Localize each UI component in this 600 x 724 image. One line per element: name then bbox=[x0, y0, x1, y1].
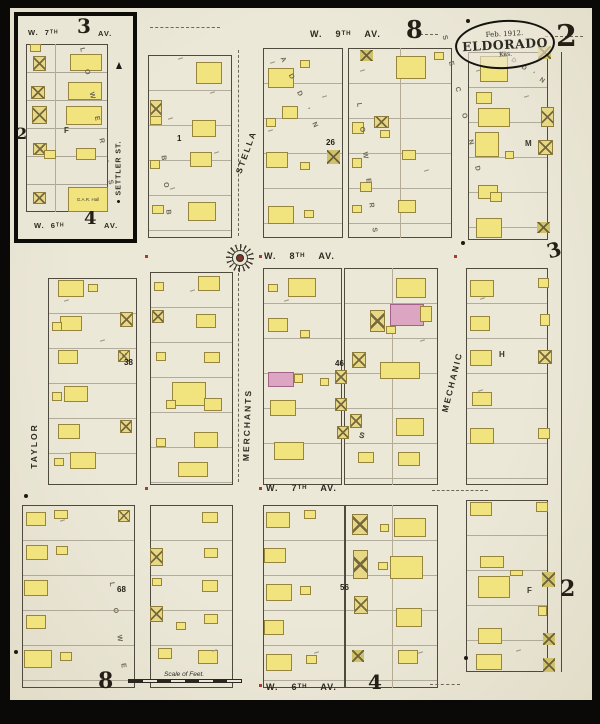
building bbox=[538, 606, 547, 616]
building bbox=[480, 556, 504, 568]
building bbox=[88, 284, 98, 292]
street-word: AV. bbox=[318, 251, 335, 261]
street-word: W. bbox=[266, 682, 279, 692]
street-word: 7ᵀᴴ bbox=[292, 483, 308, 493]
utility-dot bbox=[464, 656, 468, 660]
brick-building bbox=[268, 372, 294, 387]
building bbox=[158, 648, 172, 659]
dashed-line bbox=[238, 50, 239, 236]
lot-letter-f: F bbox=[527, 587, 532, 595]
building bbox=[510, 570, 523, 576]
street-label-w6th-inset: W. 6ᵀᴴ bbox=[34, 221, 64, 230]
building bbox=[190, 152, 212, 167]
compass-hub bbox=[236, 254, 244, 262]
outbuilding-x bbox=[150, 548, 163, 566]
outbuilding-x bbox=[152, 310, 164, 323]
hydrant-mark bbox=[454, 255, 457, 258]
street-word: AV. bbox=[320, 483, 337, 493]
street-word: 9ᵀᴴ bbox=[336, 29, 352, 39]
block-number-4-bottom: 4 bbox=[368, 672, 382, 692]
building bbox=[306, 655, 317, 664]
block-number-2-right: 2 bbox=[560, 578, 575, 600]
building bbox=[470, 428, 494, 444]
outbuilding-x bbox=[31, 86, 45, 99]
gar-hall-label: G.A.R. Hall bbox=[77, 197, 100, 202]
building bbox=[472, 392, 492, 406]
street-label-settler: SETTLER ST. bbox=[116, 141, 123, 196]
building bbox=[26, 545, 48, 560]
building bbox=[150, 116, 162, 125]
street-label-w6th: W. 6ᵀᴴ AV. bbox=[266, 682, 337, 692]
street-word: 8ᵀᴴ bbox=[290, 251, 306, 261]
building bbox=[476, 92, 492, 104]
building bbox=[396, 56, 426, 79]
building bbox=[402, 150, 416, 160]
street-word: AV. bbox=[320, 682, 337, 692]
lot-number: 68 bbox=[117, 586, 126, 594]
dashed-line bbox=[432, 490, 488, 491]
building bbox=[26, 615, 46, 629]
building bbox=[60, 316, 82, 331]
building bbox=[152, 578, 162, 586]
building bbox=[380, 524, 389, 532]
street-word: W. bbox=[34, 221, 45, 230]
outbuilding-x bbox=[538, 140, 553, 155]
outbuilding-x bbox=[327, 150, 340, 164]
street-label-av2-inset: AV. bbox=[104, 221, 118, 230]
lot-letter-h: H bbox=[499, 351, 505, 359]
utility-dot bbox=[461, 241, 465, 245]
building bbox=[270, 400, 296, 416]
building bbox=[204, 352, 220, 363]
building bbox=[266, 512, 290, 528]
hydrant-mark bbox=[145, 487, 148, 490]
outbuilding-x bbox=[542, 572, 555, 587]
lot-number: 56 bbox=[340, 584, 349, 592]
outbuilding-x bbox=[335, 398, 347, 411]
city-block bbox=[150, 272, 233, 485]
outbuilding-x bbox=[537, 222, 550, 233]
outbuilding-x bbox=[120, 312, 133, 327]
hydrant-mark bbox=[259, 255, 262, 258]
compass-rose-icon bbox=[226, 244, 254, 272]
building bbox=[470, 502, 492, 516]
building bbox=[378, 562, 388, 570]
outbuilding-x bbox=[352, 352, 366, 368]
building bbox=[204, 398, 222, 411]
outbuilding-x bbox=[370, 310, 385, 332]
building bbox=[198, 276, 220, 291]
building bbox=[490, 192, 502, 202]
building bbox=[52, 322, 62, 331]
outbuilding-x bbox=[354, 596, 368, 614]
building bbox=[398, 200, 416, 213]
building bbox=[268, 318, 288, 332]
street-word: AV. bbox=[364, 29, 381, 39]
building bbox=[150, 160, 160, 169]
building bbox=[478, 628, 502, 644]
outbuilding-x bbox=[32, 106, 47, 124]
survey-dot bbox=[117, 200, 120, 203]
building bbox=[166, 400, 176, 409]
building bbox=[58, 350, 78, 364]
building bbox=[390, 556, 423, 579]
street-word: W. bbox=[310, 29, 323, 39]
street-word: 6ᵀᴴ bbox=[292, 682, 308, 692]
city-block bbox=[466, 268, 548, 485]
lot-letter-m: M bbox=[525, 140, 532, 148]
building bbox=[470, 350, 492, 366]
building bbox=[58, 280, 84, 297]
building bbox=[154, 282, 164, 291]
building bbox=[24, 650, 52, 668]
street-word: 7ᵀᴴ bbox=[45, 28, 59, 37]
building bbox=[386, 326, 396, 334]
building bbox=[538, 428, 550, 439]
outbuilding-x bbox=[541, 107, 554, 127]
building bbox=[476, 654, 502, 670]
building bbox=[396, 418, 424, 436]
sanborn-map-page: G.A.R. Hall W. 7ᵀᴴ 3 AV. W. 6ᵀᴴ 4 AV. 2 … bbox=[0, 0, 600, 724]
building bbox=[196, 314, 216, 328]
building bbox=[268, 284, 278, 292]
building bbox=[304, 510, 316, 519]
block-number-2-inset: 2 bbox=[16, 126, 27, 142]
building bbox=[176, 622, 186, 630]
utility-dot bbox=[24, 494, 28, 498]
building bbox=[54, 458, 64, 466]
utility-dot bbox=[14, 650, 18, 654]
lot-number: 1 bbox=[177, 135, 181, 143]
outbuilding-x bbox=[350, 414, 362, 428]
building bbox=[294, 374, 303, 383]
building bbox=[70, 452, 96, 469]
building bbox=[266, 118, 276, 127]
building bbox=[505, 151, 514, 159]
lot-line bbox=[55, 44, 56, 212]
building bbox=[304, 210, 314, 218]
building bbox=[394, 518, 426, 537]
lot-number: 46 bbox=[335, 360, 344, 368]
dashed-line bbox=[238, 268, 239, 482]
street-word: W. bbox=[264, 251, 277, 261]
building bbox=[196, 62, 222, 84]
building bbox=[26, 512, 46, 526]
street-label-w8th: W. 8ᵀᴴ AV. bbox=[264, 251, 335, 261]
street-label-w7th-inset: W. 7ᵀᴴ bbox=[28, 28, 58, 37]
scale-bar bbox=[128, 679, 242, 683]
building bbox=[192, 120, 216, 137]
building bbox=[470, 280, 494, 297]
building bbox=[475, 132, 499, 157]
building bbox=[300, 60, 310, 68]
building bbox=[300, 162, 310, 170]
building bbox=[352, 158, 362, 168]
building bbox=[198, 650, 218, 664]
outbuilding-x bbox=[150, 606, 163, 622]
building bbox=[538, 278, 549, 288]
block-number-4: 4 bbox=[84, 210, 97, 228]
page-number: 2 bbox=[556, 22, 577, 52]
building bbox=[470, 316, 490, 331]
building bbox=[476, 218, 502, 238]
lot-number: 38 bbox=[124, 359, 133, 367]
outbuilding-x bbox=[33, 192, 46, 204]
building bbox=[202, 512, 218, 523]
building bbox=[396, 608, 422, 627]
building bbox=[536, 502, 548, 512]
building bbox=[300, 586, 311, 595]
building bbox=[24, 580, 48, 596]
block-number-3: 3 bbox=[77, 16, 91, 36]
street-word: AV. bbox=[104, 221, 118, 230]
outbuilding-x bbox=[120, 420, 132, 433]
building bbox=[288, 278, 316, 297]
building bbox=[194, 432, 218, 448]
hydrant-mark bbox=[259, 684, 262, 687]
title-state: Kas. bbox=[499, 51, 512, 58]
block-number-8-bottom: 8 bbox=[98, 670, 113, 692]
building bbox=[52, 392, 62, 401]
outbuilding-x bbox=[353, 550, 368, 579]
street-word: AV. bbox=[98, 29, 112, 38]
street-label-w9th: W. 9ᵀᴴ AV. bbox=[310, 29, 381, 39]
hydrant-mark bbox=[145, 255, 148, 258]
outbuilding-x bbox=[118, 510, 130, 522]
building bbox=[266, 654, 292, 671]
building bbox=[202, 580, 218, 592]
outbuilding-x bbox=[352, 514, 368, 535]
building bbox=[358, 452, 374, 463]
block-number-8-top: 8 bbox=[406, 18, 423, 42]
outbuilding-x bbox=[543, 633, 555, 645]
building bbox=[478, 576, 510, 598]
building bbox=[320, 378, 329, 386]
north-arrow-icon bbox=[116, 62, 122, 69]
city-block bbox=[150, 505, 233, 688]
outbuilding-x bbox=[543, 658, 555, 672]
building bbox=[58, 424, 80, 439]
building bbox=[420, 306, 432, 322]
building bbox=[204, 614, 218, 624]
building bbox=[274, 442, 304, 460]
street-label-taylor: TAYLOR bbox=[29, 423, 39, 469]
building bbox=[352, 205, 362, 213]
street-label-w7th: W. 7ᵀᴴ AV. bbox=[266, 483, 337, 493]
lot-number: 26 bbox=[326, 139, 335, 147]
building bbox=[478, 108, 510, 127]
building bbox=[64, 386, 88, 402]
outbuilding-x bbox=[33, 56, 46, 71]
building bbox=[30, 44, 41, 52]
dashed-line bbox=[430, 684, 460, 685]
dashed-line bbox=[150, 27, 220, 28]
building bbox=[268, 206, 294, 224]
building bbox=[264, 620, 284, 635]
street-word: W. bbox=[28, 28, 39, 37]
outbuilding-x bbox=[360, 50, 373, 61]
building bbox=[540, 314, 550, 326]
building bbox=[266, 152, 288, 168]
building bbox=[434, 52, 444, 60]
outbuilding-x bbox=[337, 426, 349, 439]
building bbox=[56, 546, 68, 555]
building bbox=[380, 130, 390, 138]
building bbox=[398, 452, 420, 466]
building bbox=[178, 462, 208, 477]
building bbox=[156, 438, 166, 447]
building bbox=[396, 278, 426, 298]
building bbox=[156, 352, 166, 361]
building bbox=[60, 652, 72, 661]
lot-line bbox=[392, 505, 393, 688]
building bbox=[300, 330, 310, 338]
building bbox=[204, 548, 218, 558]
building bbox=[266, 584, 292, 601]
building bbox=[380, 362, 420, 379]
street-word: 6ᵀᴴ bbox=[51, 221, 65, 230]
outbuilding-x bbox=[352, 650, 364, 662]
outbuilding-x bbox=[335, 370, 347, 384]
building bbox=[152, 205, 164, 214]
street-label-av-inset: AV. bbox=[98, 29, 112, 38]
outbuilding-x bbox=[538, 350, 552, 364]
hydrant-mark bbox=[259, 487, 262, 490]
scale-label: Scale of Feet. bbox=[164, 671, 204, 678]
street-word: W. bbox=[266, 483, 279, 493]
building bbox=[282, 106, 298, 119]
brick-building bbox=[390, 304, 424, 326]
building bbox=[44, 150, 56, 159]
lot-letter-f: F bbox=[64, 127, 69, 135]
building bbox=[398, 650, 418, 664]
utility-dot bbox=[466, 19, 470, 23]
building bbox=[188, 202, 216, 221]
building bbox=[264, 548, 286, 563]
building bbox=[172, 382, 206, 406]
building bbox=[76, 148, 96, 160]
outbuilding-x bbox=[374, 116, 389, 128]
building bbox=[54, 510, 68, 519]
